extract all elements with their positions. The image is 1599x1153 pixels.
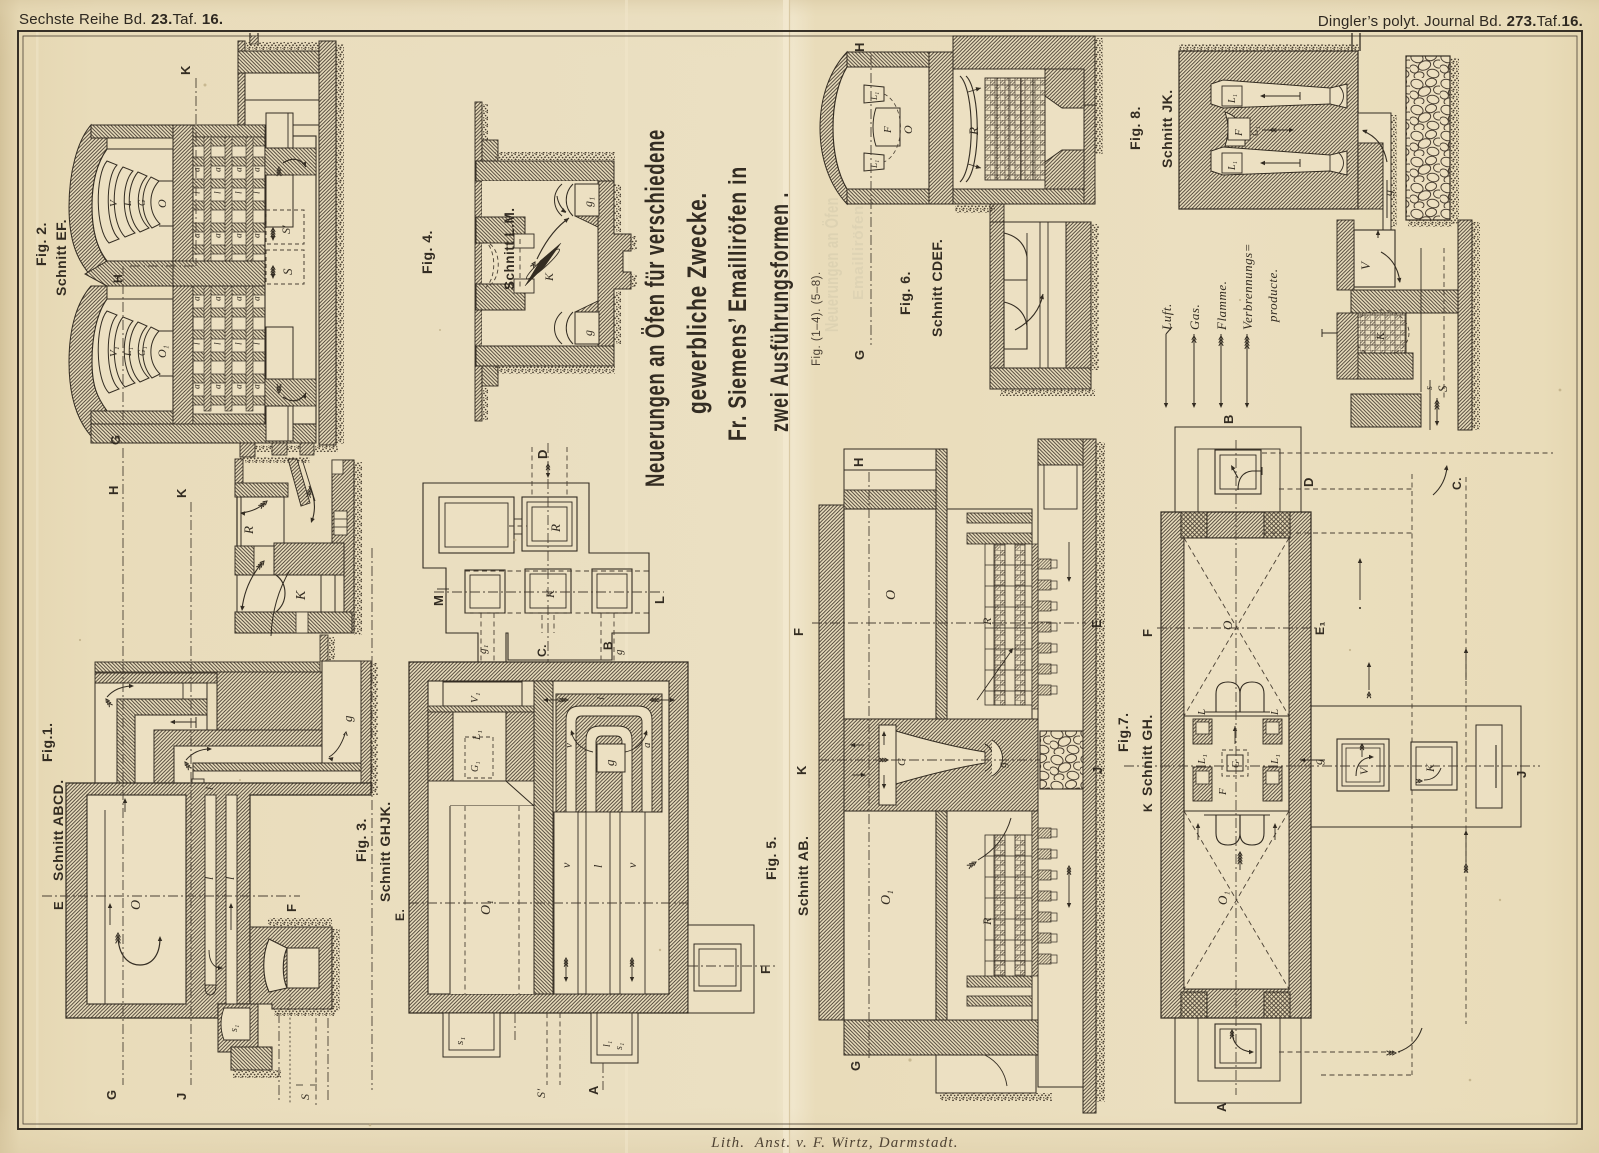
svg-text:a: a (193, 384, 203, 389)
svg-text:g₁: g₁ (581, 197, 595, 207)
svg-text:O: O (129, 900, 144, 910)
svg-text:l: l (214, 191, 224, 194)
svg-text:l: l (235, 191, 245, 194)
svg-text:K: K (1423, 763, 1437, 773)
svg-text:L₁: L₁ (123, 347, 134, 357)
svg-text:Fig. 2.: Fig. 2. (33, 222, 49, 266)
svg-text:K: K (174, 488, 189, 498)
svg-text:a: a (235, 233, 245, 238)
svg-text:F: F (791, 628, 806, 636)
svg-text:Gas.: Gas. (1187, 304, 1202, 330)
svg-text:Schnitt CDEF.: Schnitt CDEF. (929, 239, 945, 337)
svg-text:s₁: s₁ (454, 1037, 466, 1045)
svg-text:L₁: L₁ (869, 160, 879, 169)
svg-text:L₁: L₁ (869, 92, 879, 101)
svg-text:a: a (193, 296, 203, 301)
svg-text:l: l (193, 191, 203, 194)
svg-text:E.: E. (393, 909, 407, 921)
svg-text:O₁: O₁ (879, 890, 894, 905)
svg-text:H: H (852, 42, 867, 52)
svg-text:R: R (241, 526, 256, 535)
svg-text:F: F (882, 126, 894, 134)
svg-text:Fig.7.: Fig.7. (1115, 712, 1131, 752)
svg-text:a: a (253, 384, 263, 389)
svg-text:K: K (294, 590, 309, 601)
svg-text:J: J (1514, 770, 1529, 778)
svg-text:S: S (1435, 385, 1450, 392)
svg-text:v: v (559, 862, 573, 868)
svg-text:Fig. 6.: Fig. 6. (897, 271, 913, 315)
svg-text:L: L (1196, 709, 1208, 716)
svg-text:E: E (1089, 619, 1104, 628)
svg-text:Schnitt EF.: Schnitt EF. (53, 219, 69, 296)
svg-text:K: K (543, 589, 557, 599)
svg-text:A: A (586, 1085, 601, 1095)
svg-text:R: R (980, 617, 994, 626)
svg-text:K: K (1141, 803, 1155, 812)
svg-text:a: a (235, 296, 245, 301)
svg-text:producte.: producte. (1265, 269, 1280, 323)
svg-text:Schnitt JK.: Schnitt JK. (1159, 89, 1175, 168)
svg-text:Schnitt AB.: Schnitt AB. (795, 836, 811, 916)
svg-text:Fig.1.: Fig.1. (39, 722, 55, 762)
svg-text:Dingler’s polyt. Journal Bd. 2: Dingler’s polyt. Journal Bd. 273.Taf.16. (1318, 13, 1583, 30)
svg-text:O₁: O₁ (479, 900, 494, 915)
svg-text:K: K (178, 65, 193, 75)
svg-text:Neuerungen an Öfen: Neuerungen an Öfen (822, 197, 842, 332)
svg-text:Schnitt ABCD.: Schnitt ABCD. (50, 779, 66, 881)
svg-text:gewerbliche Zwecke.: gewerbliche Zwecke. (682, 192, 712, 414)
svg-text:F: F (1233, 129, 1245, 137)
svg-text:R: R (548, 524, 563, 533)
svg-text:O: O (884, 590, 899, 600)
svg-text:S′: S′ (279, 225, 293, 234)
svg-text:O: O (155, 199, 169, 208)
svg-text:F: F (758, 966, 773, 974)
svg-text:R: R (966, 127, 981, 136)
svg-text:g: g (340, 715, 355, 722)
svg-text:J: J (1090, 766, 1105, 774)
svg-text:g: g (613, 649, 625, 655)
svg-text:Fig. 8.: Fig. 8. (1127, 106, 1143, 150)
svg-text:l₁: l₁ (602, 1041, 613, 1047)
svg-text:a: a (253, 167, 263, 172)
svg-text:O₁: O₁ (1215, 891, 1230, 905)
svg-text:M: M (431, 595, 446, 606)
svg-text:V₁: V₁ (469, 692, 481, 703)
svg-text:O: O (901, 125, 915, 134)
svg-text:C.: C. (535, 644, 549, 657)
svg-text:L: L (123, 200, 134, 207)
svg-text:L₁: L₁ (1196, 754, 1208, 765)
svg-text:Fig. 5.: Fig. 5. (763, 836, 779, 880)
svg-text:l: l (595, 697, 607, 700)
svg-text:H: H (851, 457, 866, 467)
svg-text:G₁: G₁ (137, 346, 147, 356)
svg-text:G: G (137, 199, 147, 206)
svg-text:g: g (1381, 190, 1395, 196)
svg-text:G: G (108, 434, 123, 445)
svg-text:V₁: V₁ (108, 346, 120, 357)
svg-text:v: v (625, 862, 639, 868)
svg-text:Schnitt L.M.: Schnitt L.M. (502, 208, 517, 291)
svg-text:Sechste Reihe Bd. 23.Taf. 16.: Sechste Reihe Bd. 23.Taf. 16. (19, 11, 223, 28)
svg-text:a: a (214, 384, 224, 389)
svg-text:F: F (1217, 788, 1229, 796)
svg-text:F: F (284, 904, 299, 912)
svg-text:v: v (563, 743, 575, 748)
svg-text:s₁: s₁ (614, 1043, 625, 1050)
svg-text:l: l (193, 342, 203, 345)
svg-text:K: K (794, 765, 809, 775)
svg-text:F: F (1140, 629, 1155, 637)
svg-text:a: a (214, 296, 224, 301)
svg-text:Flamme.: Flamme. (1214, 281, 1229, 331)
svg-text:a: a (214, 233, 224, 238)
svg-text:l: l (253, 191, 263, 194)
svg-text:G: G (852, 349, 867, 360)
svg-text:s: s (1424, 386, 1435, 390)
svg-text:E: E (51, 901, 66, 910)
svg-text:Schnitt GH.: Schnitt GH. (1139, 714, 1155, 796)
svg-text:J: J (174, 1092, 189, 1100)
svg-text:Verbrennungs=: Verbrennungs= (1240, 243, 1255, 330)
svg-text:a: a (253, 296, 263, 301)
svg-text:g: g (602, 759, 617, 766)
svg-text:L: L (652, 596, 667, 604)
svg-text:G₁: G₁ (470, 761, 481, 772)
svg-text:a: a (253, 233, 263, 238)
svg-text:g: g (995, 762, 1009, 768)
svg-text:K: K (542, 272, 556, 282)
svg-text:S′: S′ (534, 1088, 548, 1098)
svg-text:Emailliröfen: Emailliröfen (850, 205, 867, 300)
svg-text:R: R (980, 917, 994, 926)
svg-text:Fig. 3.: Fig. 3. (353, 818, 369, 862)
svg-text:Fig. 4.: Fig. 4. (419, 230, 435, 274)
svg-text:Neuerungen an Öfen für verschi: Neuerungen an Öfen für verschiedene (640, 129, 670, 487)
svg-text:s₁: s₁ (229, 1025, 240, 1032)
svg-text:B: B (1221, 414, 1236, 424)
svg-text:G: G (1231, 761, 1242, 768)
svg-text:L₁: L₁ (1227, 161, 1238, 171)
svg-text:L: L (1269, 709, 1281, 716)
svg-text:H: H (106, 485, 121, 495)
svg-text:a: a (235, 167, 245, 172)
svg-text:a: a (641, 742, 653, 748)
svg-text:a: a (193, 233, 203, 238)
svg-text:L₁: L₁ (471, 730, 483, 741)
svg-text:Lith. Anst. v. F. Wirtz, Darm: Lith. Anst. v. F. Wirtz, Darmstadt. (710, 1135, 958, 1151)
svg-text:A: A (1214, 1102, 1229, 1112)
svg-text:B: B (601, 641, 615, 650)
svg-text:G: G (896, 758, 908, 766)
svg-text:l: l (253, 342, 263, 345)
svg-text:a: a (214, 167, 224, 172)
svg-text:g: g (581, 330, 595, 336)
svg-text:a: a (235, 384, 245, 389)
svg-text:S: S (280, 268, 295, 275)
svg-text:g₁: g₁ (477, 645, 489, 655)
svg-text:K: K (1375, 332, 1387, 341)
svg-text:Schnitt GHJK.: Schnitt GHJK. (377, 801, 393, 902)
svg-text:G: G (848, 1060, 863, 1071)
svg-text:Fr. Siemens’ Emailliröfen in: Fr. Siemens’ Emailliröfen in (724, 166, 752, 441)
svg-text:D: D (1301, 477, 1316, 487)
svg-text:L₁: L₁ (1227, 94, 1238, 104)
svg-text:l: l (214, 342, 224, 345)
svg-text:O₁: O₁ (155, 345, 169, 358)
svg-text:C.: C. (1450, 477, 1464, 490)
svg-text:a: a (193, 167, 203, 172)
svg-text:l: l (235, 342, 245, 345)
svg-text:L₁: L₁ (1269, 754, 1281, 765)
svg-text:l: l (204, 787, 216, 790)
svg-text:G: G (104, 1089, 119, 1100)
svg-text:zwei Ausführungsformen .: zwei Ausführungsformen . (766, 192, 794, 432)
svg-text:O: O (1220, 620, 1235, 630)
svg-text:G₁: G₁ (1250, 126, 1260, 136)
svg-text:S: S (298, 1094, 312, 1101)
